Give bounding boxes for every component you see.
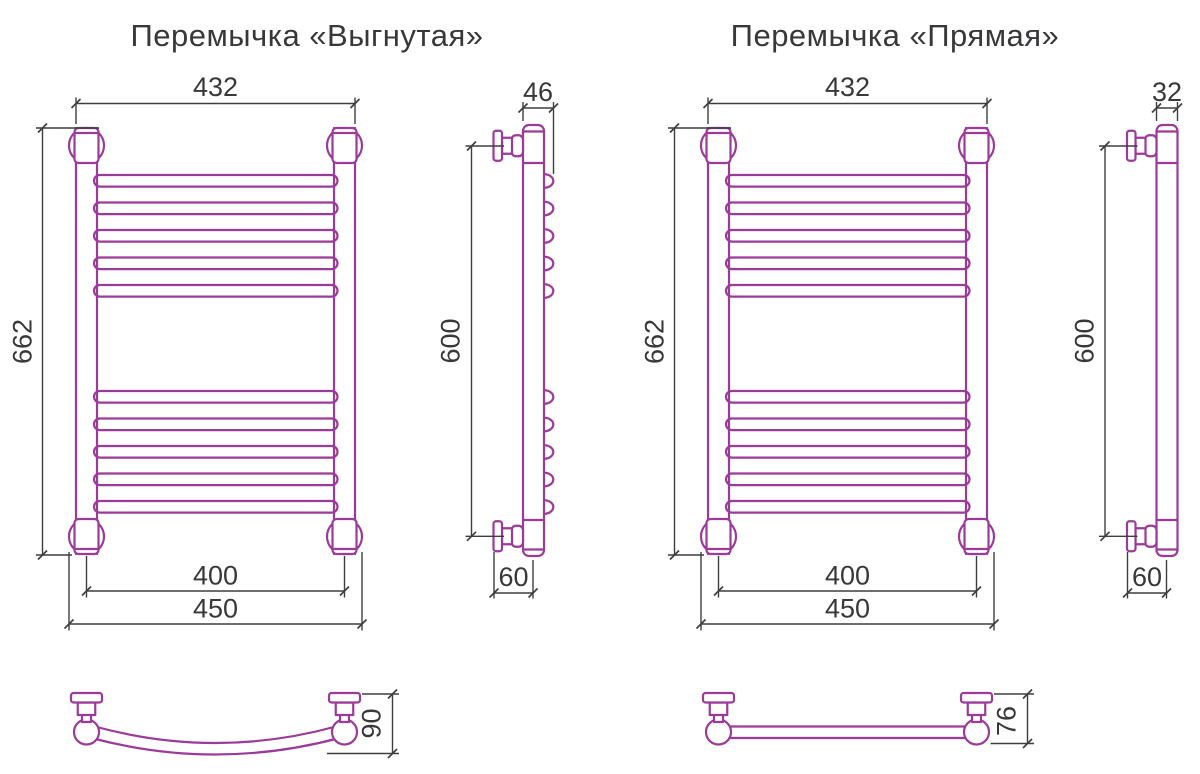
post-section-left [74,720,99,745]
dim-curved-top-width: 432 [193,72,238,102]
dim-curved-side-height: 600 [436,318,466,363]
dim-straight-axis-width: 400 [825,561,870,591]
towel-rail-front-straight [701,128,994,554]
plan-bracket-right [961,693,992,722]
dim-straight-top-width: 432 [825,72,870,102]
dim-curved-side-top-depth: 46 [523,77,553,107]
curved-bar-top-edge [95,727,336,744]
towel-rail-front-curved [69,128,362,554]
dim-curved-overall-width: 450 [193,594,238,624]
plan-view-curved: 90 [71,690,399,759]
plan-bracket-left [703,693,734,722]
straight-bar-edges [726,727,969,739]
dim-curved-height: 662 [8,319,38,364]
side-view-curved: 46 600 60 [436,77,559,599]
title-straight: Перемычка «Прямая» [731,18,1060,53]
curved-rung-bumps [544,174,553,514]
dim-straight-height: 662 [640,319,670,364]
drawing-canvas: Перемычка «Выгнутая» Перемычка «Прямая» … [0,0,1200,774]
dim-straight-side-top-depth: 32 [1152,77,1182,107]
title-curved: Перемычка «Выгнутая» [130,18,483,53]
post-section-left [706,720,731,745]
side-view-straight: 32 600 60 [1070,77,1183,599]
dim-straight-side-height: 600 [1070,318,1100,363]
plan-bracket-right [329,693,360,722]
side-tube-curved [523,125,544,556]
front-view-straight: 432 662 400 450 [640,72,999,631]
post-section-right [332,720,357,745]
side-tube-straight [1157,125,1178,556]
dim-curved-side-bottom-depth: 60 [498,562,528,592]
dim-curved-plan-depth: 90 [357,708,387,738]
post-section-right [964,720,989,745]
technical-drawing-page: Перемычка «Выгнутая» Перемычка «Прямая» … [0,0,1200,774]
plan-bracket-left [71,693,102,722]
dim-straight-plan-depth: 76 [992,706,1022,736]
dim-straight-side-bottom-depth: 60 [1132,562,1162,592]
curved-bar-bottom-edge [92,738,340,755]
dim-straight-overall-width: 450 [825,594,870,624]
front-view-curved: 432 662 400 450 [8,72,367,631]
plan-view-straight: 76 [703,690,1034,749]
dim-curved-axis-width: 400 [193,561,238,591]
